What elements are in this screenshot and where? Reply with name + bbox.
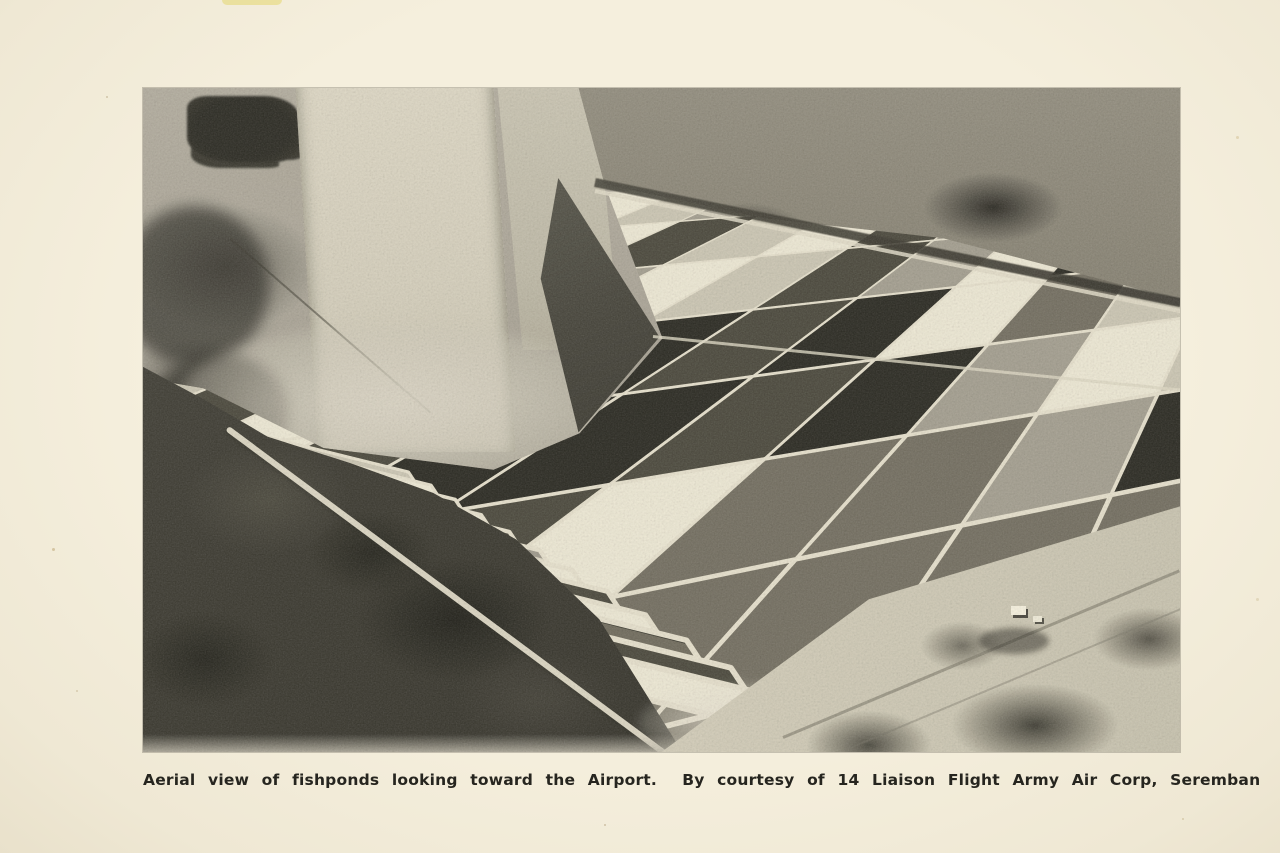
foxing-speck <box>604 824 606 826</box>
photo-bottom-shore <box>143 734 708 752</box>
tree-grove <box>187 96 299 162</box>
foxing-speck <box>1236 136 1239 139</box>
foxing-speck <box>76 690 78 692</box>
foxing-speck <box>106 96 108 98</box>
foxing-speck <box>1256 598 1259 601</box>
foxing-speck <box>1182 818 1184 820</box>
book-page: Aerial view of fishponds looking toward … <box>0 0 1280 853</box>
hut <box>1011 606 1026 615</box>
foxing-speck <box>52 548 55 551</box>
photo-caption: Aerial view of fishponds looking toward … <box>143 770 1180 790</box>
bush-clump <box>979 628 1049 654</box>
aerial-photograph <box>143 88 1180 752</box>
page-edge-stain <box>222 0 282 5</box>
hut <box>1033 616 1042 622</box>
